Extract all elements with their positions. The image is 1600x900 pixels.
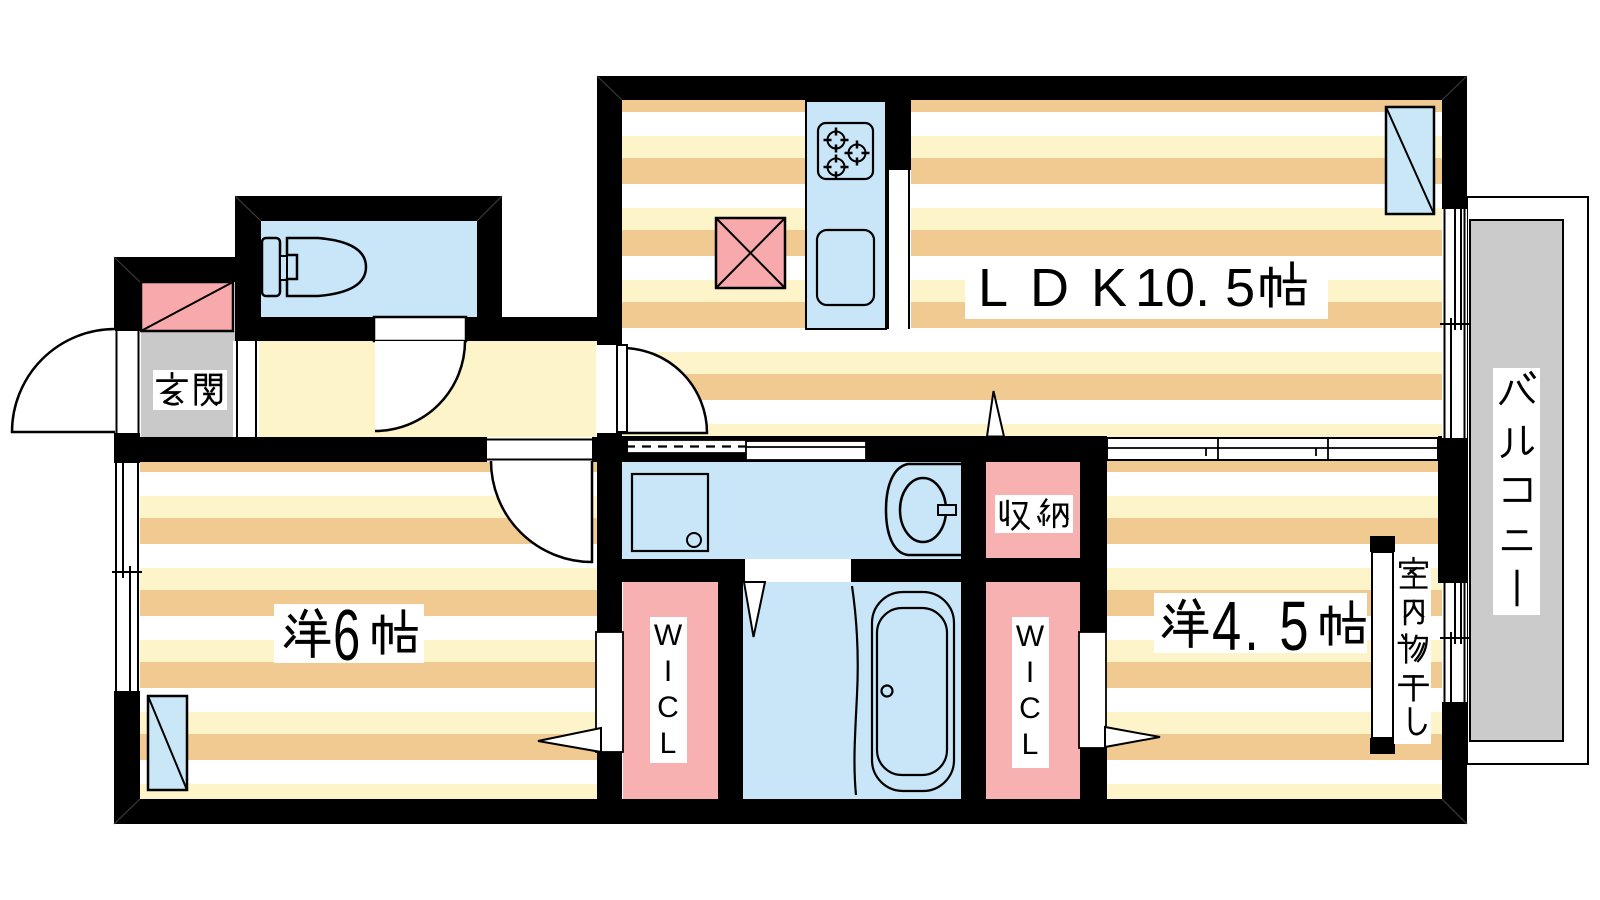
svg-text:C: C <box>1019 692 1041 725</box>
svg-text:6: 6 <box>333 596 360 677</box>
svg-text:L: L <box>1022 728 1039 761</box>
svg-text:L: L <box>660 727 677 760</box>
svg-text:W: W <box>1016 620 1045 653</box>
svg-text:I: I <box>1026 656 1034 689</box>
svg-text:C: C <box>657 691 679 724</box>
svg-text:W: W <box>654 619 683 652</box>
svg-text:LDK: LDK <box>978 258 1149 318</box>
svg-text:4. 5: 4. 5 <box>1212 588 1312 666</box>
svg-text:I: I <box>664 655 672 688</box>
svg-text:10. 5: 10. 5 <box>1135 258 1255 318</box>
